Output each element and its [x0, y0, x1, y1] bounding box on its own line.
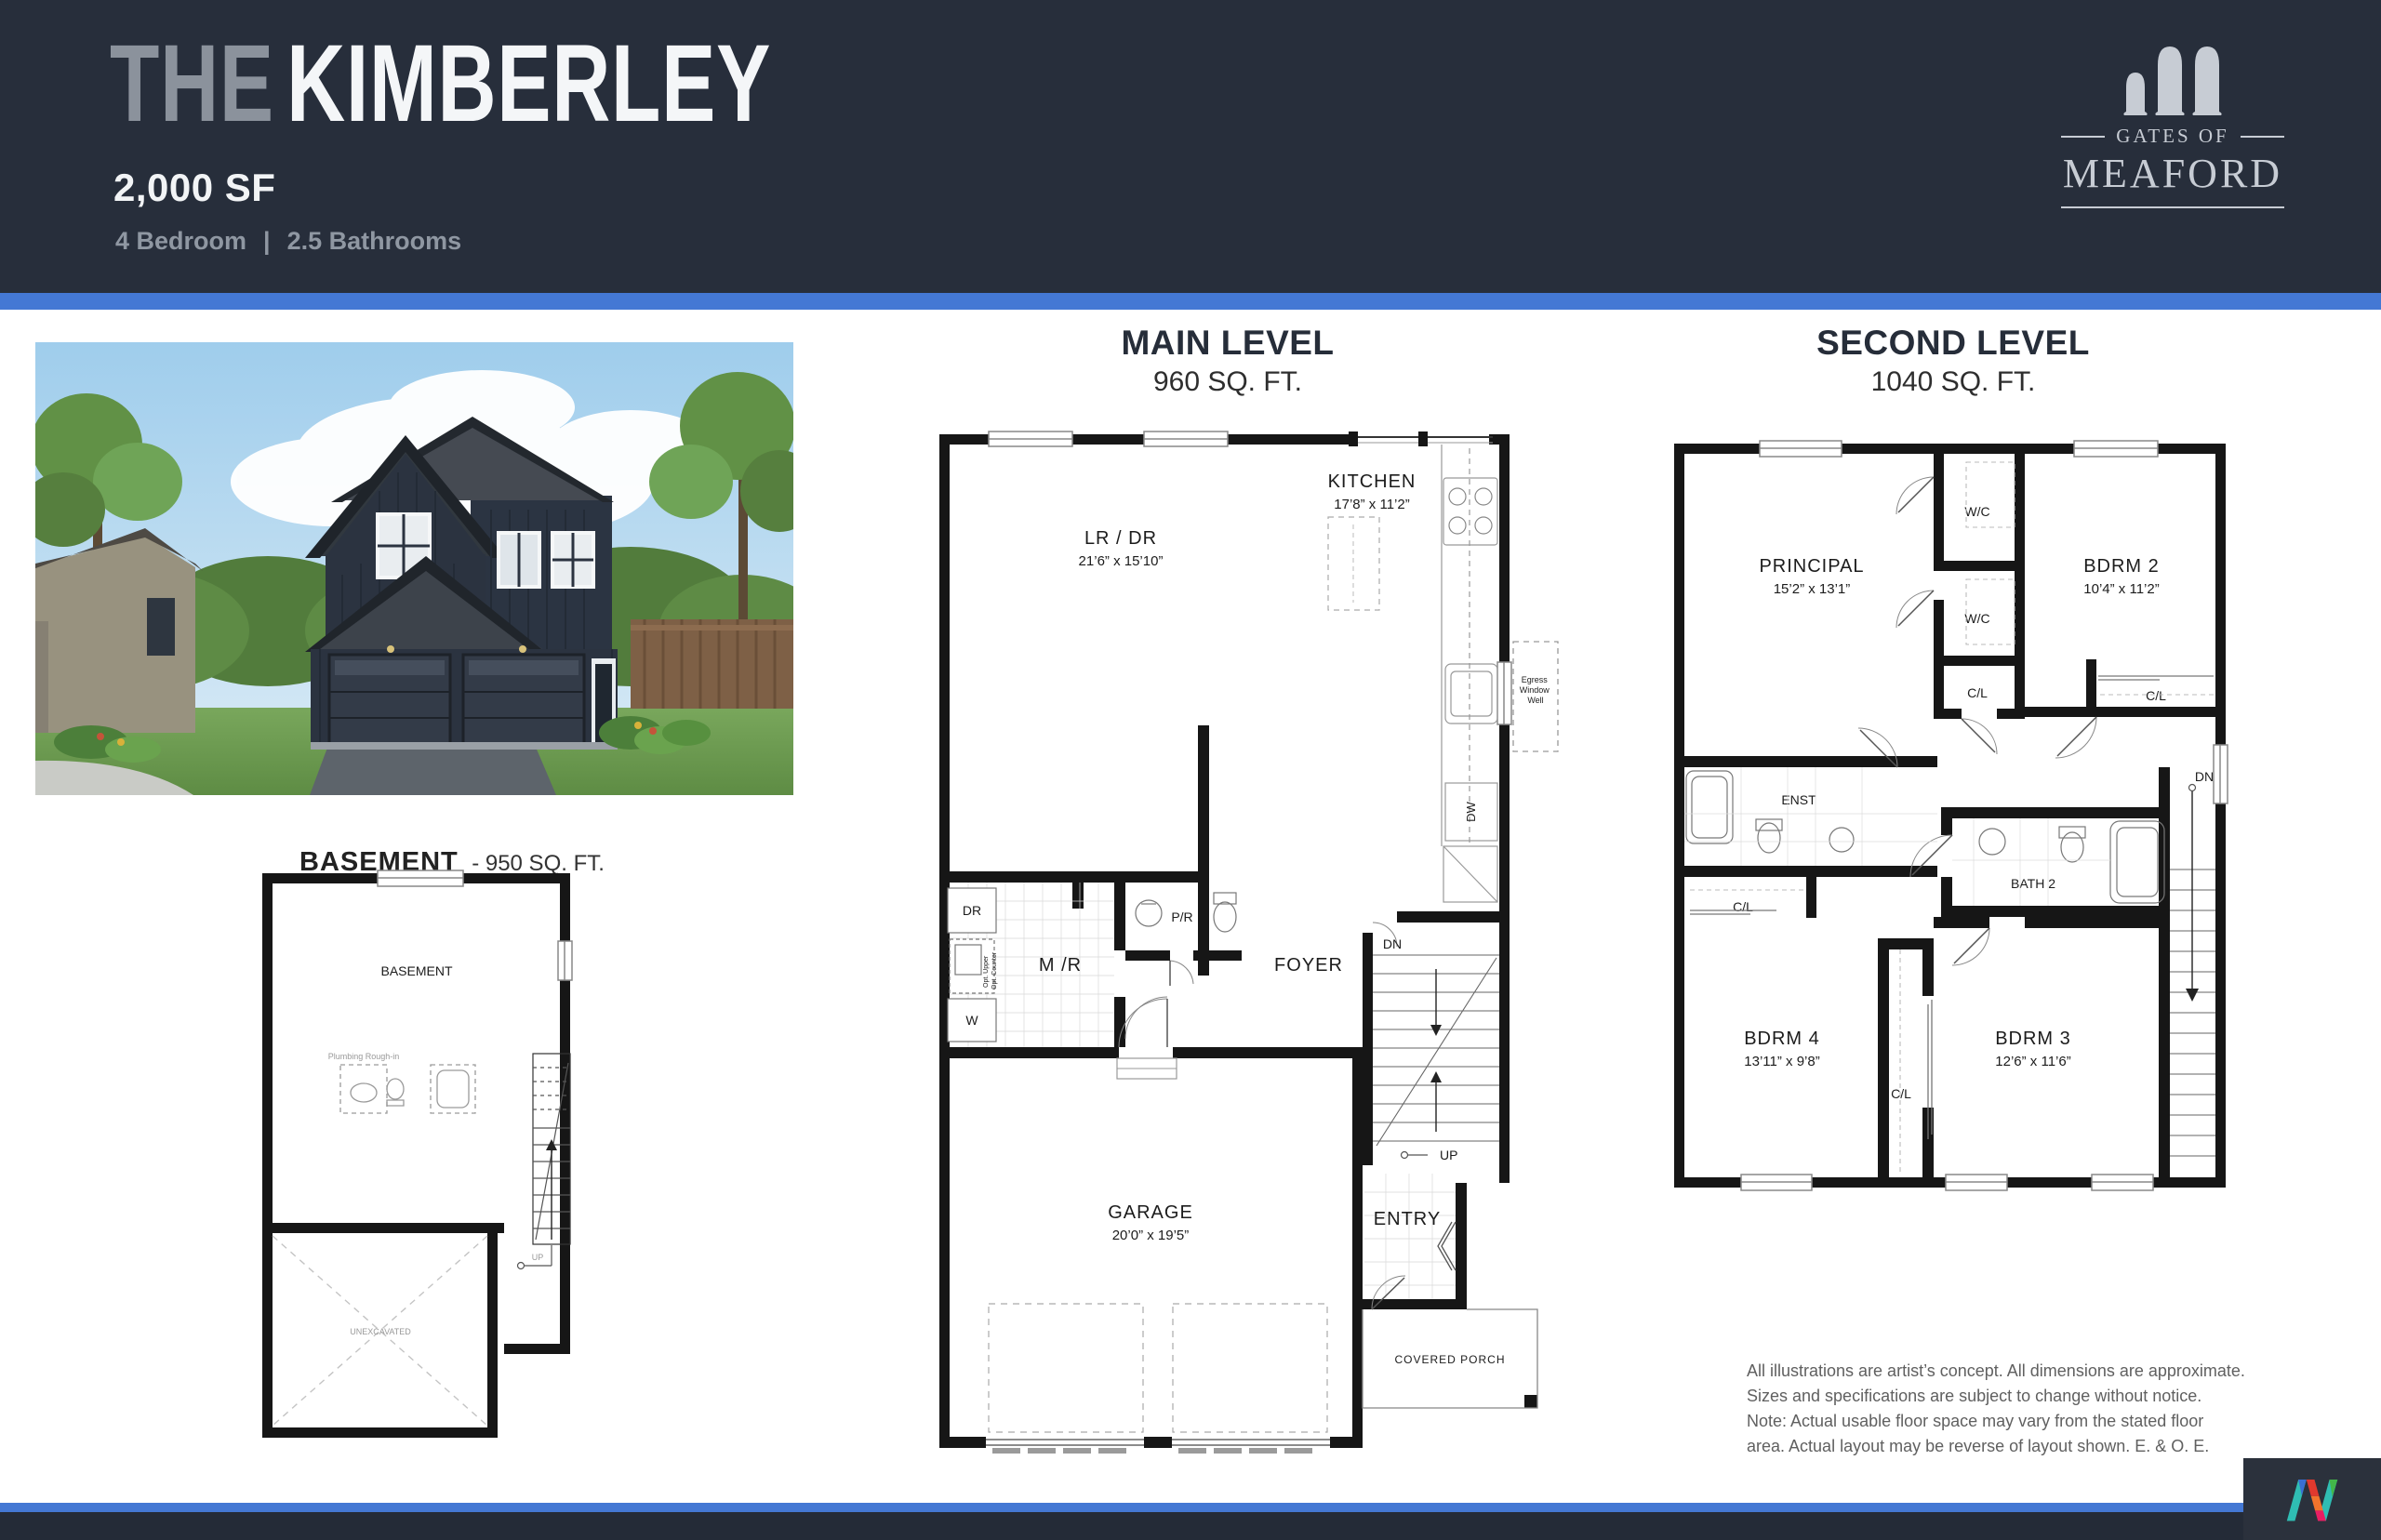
main-level-floorplan: Egress Window Well DW [935, 430, 1563, 1454]
page-title: THEKIMBERLEY [110, 20, 771, 147]
disclaimer-text: All illustrations are artist’s concept. … [1747, 1359, 2268, 1459]
main-level-heading: MAIN LEVEL [1051, 324, 1404, 363]
specs-separator: | [263, 227, 271, 255]
kitchen-label: KITCHEN [1328, 471, 1417, 492]
bedrooms-label: 4 Bedroom [115, 227, 246, 255]
cl-mid-label: C/L [1891, 1086, 1911, 1101]
bdrm4-label: BDRM 4 [1744, 1029, 1820, 1049]
opt-counter-label: Opt. Counter [991, 951, 998, 989]
title-name: KIMBERLEY [286, 22, 771, 145]
principal-dims: 15’2” x 13’1” [1774, 581, 1851, 597]
builder-logo-box [2243, 1458, 2381, 1540]
kitchen-dims: 17’8” x 11’2” [1334, 497, 1409, 512]
basement-up-label: UP [532, 1253, 544, 1262]
wc2-label: W/C [1964, 611, 1989, 626]
disclaimer-line-1: All illustrations are artist’s concept. … [1747, 1361, 2245, 1380]
basement-floorplan: BASEMENT Plumbing Rough-in UNEXCAVATED [249, 868, 584, 1467]
opt-upper-label: Opt. Upper [983, 955, 990, 988]
dw-label: DW [1464, 801, 1478, 821]
bdrm2-label: BDRM 2 [2083, 556, 2160, 577]
pr-label: P/R [1171, 909, 1192, 924]
meaford-text: MEAFORD [2061, 150, 2284, 208]
wc1-label: W/C [1964, 504, 1989, 519]
unexcavated-label: UNEXCAVATED [350, 1327, 411, 1336]
second-level-floorplan: PRINCIPAL 15’2” x 13’1” BDRM 2 10’4” x 1… [1657, 432, 2253, 1204]
gates-of-meaford-logo: GATES OF MEAFORD [2061, 45, 2284, 208]
fence [631, 619, 793, 709]
second-level-title: SECOND LEVEL 1040 SQ. FT. [1767, 324, 2139, 398]
lrdr-label: LR / DR [1084, 528, 1157, 549]
main-level-sqft: 960 SQ. FT. [1051, 366, 1404, 398]
bathrooms-label: 2.5 Bathrooms [287, 227, 462, 255]
cl-bdrm4-label: C/L [1733, 899, 1753, 914]
foyer-label: FOYER [1274, 955, 1343, 976]
footer-accent-stripe [0, 1503, 2381, 1512]
garage-label: GARAGE [1108, 1202, 1193, 1223]
header: THEKIMBERLEY 2,000 SF 4 Bedroom|2.5 Bath… [0, 0, 2381, 293]
second-dn-label: DN [2195, 769, 2214, 784]
main-dn-label: DN [1383, 936, 1402, 951]
header-accent-stripe [0, 293, 2381, 310]
total-square-footage: 2,000 SF [113, 166, 275, 210]
second-level-heading: SECOND LEVEL [1767, 324, 2139, 363]
basement-room-label: BASEMENT [380, 963, 452, 978]
house-rendering [35, 342, 793, 795]
cl-hall-label: C/L [1967, 685, 1988, 700]
neighbour-house [35, 528, 203, 733]
entry-label: ENTRY [1374, 1209, 1441, 1229]
covered-porch-label: COVERED PORCH [1394, 1353, 1505, 1366]
bdrm2-dims: 10’4” x 11’2” [2083, 581, 2159, 597]
egress-window-well-label: Egress Window Well [1520, 675, 1552, 705]
lrdr-dims: 21’6” x 15’10” [1079, 553, 1164, 569]
bed-bath-specs: 4 Bedroom|2.5 Bathrooms [115, 227, 461, 256]
disclaimer-line-2: Sizes and specifications are subject to … [1747, 1387, 2201, 1405]
enst-label: ENST [1781, 792, 1816, 807]
brochure-page: THEKIMBERLEY 2,000 SF 4 Bedroom|2.5 Bath… [0, 0, 2381, 1540]
principal-label: PRINCIPAL [1759, 556, 1864, 577]
dryer-label: DR [963, 903, 981, 918]
garage-dims: 20’0” x 19’5” [1112, 1228, 1190, 1243]
main-level-title: MAIN LEVEL 960 SQ. FT. [1051, 324, 1404, 398]
cl-bdrm2-label: C/L [2146, 688, 2166, 703]
plumbing-roughin-label: Plumbing Rough-in [328, 1052, 400, 1061]
gates-of-text: GATES OF [2061, 125, 2284, 148]
disclaimer-line-4: area. Actual layout may be reverse of la… [1747, 1437, 2209, 1455]
meaford-pillars-icon [2117, 45, 2228, 115]
title-prefix: THE [110, 22, 274, 145]
disclaimer-line-3: Note: Actual usable floor space may vary… [1747, 1412, 2203, 1430]
main-up-label: UP [1440, 1148, 1457, 1162]
bdrm3-dims: 12’6” x 11’6” [1995, 1054, 2070, 1069]
bdrm3-label: BDRM 3 [1995, 1029, 2071, 1049]
bath2-label: BATH 2 [2011, 876, 2055, 891]
footer-bar [0, 1512, 2381, 1540]
washer-label: W [965, 1013, 978, 1028]
mr-label: M /R [1039, 955, 1082, 976]
bdrm4-dims: 13’11” x 9’8” [1744, 1054, 1819, 1069]
second-level-sqft: 1040 SQ. FT. [1767, 366, 2139, 398]
content-area: MAIN LEVEL 960 SQ. FT. SECOND LEVEL 1040… [0, 310, 2381, 1503]
builder-n-icon [2283, 1475, 2341, 1523]
